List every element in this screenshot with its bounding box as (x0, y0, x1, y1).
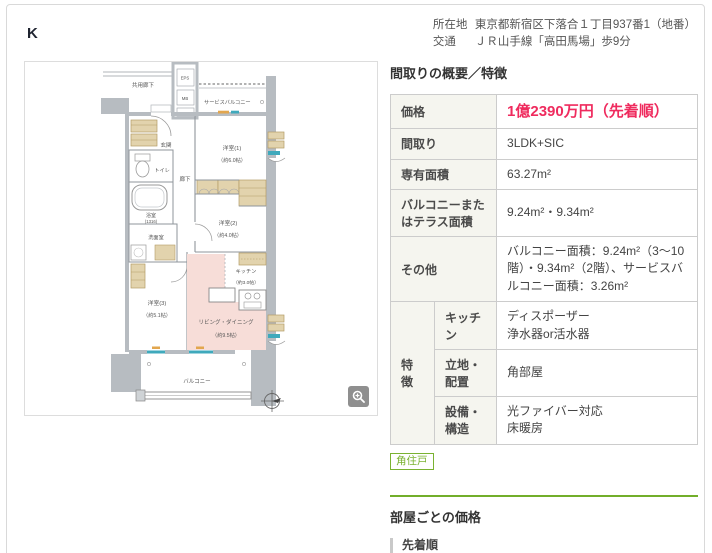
label-kitchen-size: （約3.0帖） (233, 279, 259, 286)
label-room1: 洋室(1) (223, 144, 242, 152)
label-entrance: 玄関 (160, 141, 172, 149)
features-label: 特徴 (391, 302, 435, 445)
label-mb: MB (182, 96, 189, 101)
page: K 所在地 東京都新宿区下落合１丁目937番1（地番） 交通 ＪＲ山手線「高田馬… (0, 0, 712, 553)
label-room1-size: （約6.0帖） (218, 156, 246, 164)
header: K 所在地 東京都新宿区下落合１丁目937番1（地番） 交通 ＪＲ山手線「高田馬… (24, 17, 698, 52)
room-prices-heading: 部屋ごとの価格 (390, 507, 698, 526)
label-kitchen: キッチン (236, 268, 257, 275)
property-detail-card: K 所在地 東京都新宿区下落合１丁目937番1（地番） 交通 ＪＲ山手線「高田馬… (6, 4, 705, 553)
feature-equipment-value: 光ファイバー対応 床暖房 (497, 396, 698, 444)
label-toilet: トイレ (154, 168, 170, 174)
feature-kitchen-value: ディスポーザー 浄水器or活水器 (497, 302, 698, 350)
detail-column: 間取りの概要／特徴 価格 1億2390万円（先着順） 間取り 3LDK+SIC … (390, 61, 698, 553)
area-label: 専有面積 (391, 159, 497, 189)
overview-table: 価格 1億2390万円（先着順） 間取り 3LDK+SIC 専有面積 63.27… (390, 94, 698, 445)
area-value: 63.27m² (497, 159, 698, 189)
label-room3-size: （約5.1帖） (143, 311, 171, 319)
location-label: 所在地 (433, 17, 475, 34)
section-divider (390, 495, 698, 497)
label-living-dining-size: （約9.5帖） (212, 331, 240, 339)
balcony-value: 9.24m²・9.34m² (497, 190, 698, 237)
label-balcony: バルコニー (183, 378, 210, 385)
other-label: その他 (391, 237, 497, 302)
label-service-balcony: サービスバルコニー (204, 98, 251, 106)
feature-location-value: 角部屋 (497, 349, 698, 396)
feature-row-equipment: 設備・構造 光ファイバー対応 床暖房 (391, 396, 698, 444)
price-value: 1億2390万円（先着順） (497, 94, 698, 129)
feature-equipment-label: 設備・構造 (435, 396, 497, 444)
magnifier-icon (352, 390, 365, 403)
main-content: 共用廊下 EPS MB サービスバルコニー (24, 61, 698, 553)
property-info: 所在地 東京都新宿区下落合１丁目937番1（地番） 交通 ＪＲ山手線「高田馬場」… (433, 17, 698, 52)
label-eps: EPS (181, 75, 190, 80)
corner-unit-badge: 角住戸 (390, 453, 434, 471)
spec-row-balcony: バルコニーまたはテラス面積 9.24m²・9.34m² (391, 190, 698, 237)
feature-location-label: 立地・配置 (435, 349, 497, 396)
spec-row-layout: 間取り 3LDK+SIC (391, 129, 698, 159)
label-bath: 浴室 (146, 212, 156, 219)
access-label: 交通 (433, 34, 475, 51)
label-room2-size: （約4.0帖） (214, 231, 242, 239)
price-label: 価格 (391, 94, 497, 129)
overview-heading: 間取りの概要／特徴 (390, 63, 698, 82)
floorplan-zoom-button[interactable] (348, 386, 369, 407)
spec-row-other: その他 バルコニー面積：9.24m²（3～10階）・9.34m²（2階）、サービ… (391, 237, 698, 302)
page-title: K (24, 25, 38, 42)
feature-row-location: 立地・配置 角部屋 (391, 349, 698, 396)
label-living-dining: リビング・ダイニング (198, 318, 254, 326)
spec-row-price: 価格 1億2390万円（先着順） (391, 94, 698, 129)
location-value: 東京都新宿区下落合１丁目937番1（地番） (475, 17, 696, 34)
other-value: バルコニー面積：9.24m²（3～10階）・9.34m²（2階）、サービスバルコ… (497, 237, 698, 302)
feature-kitchen-label: キッチン (435, 302, 497, 350)
label-corridor: 共用廊下 (132, 81, 155, 89)
room-prices-subheading: 先着順 (390, 538, 698, 553)
label-hallway: 廊下 (179, 175, 191, 183)
access-value: ＪＲ山手線「高田馬場」歩9分 (475, 34, 631, 51)
label-room3: 洋室(3) (148, 299, 167, 307)
spec-row-area: 専有面積 63.27m² (391, 159, 698, 189)
label-room2: 洋室(2) (219, 219, 238, 227)
layout-value: 3LDK+SIC (497, 129, 698, 159)
balcony-label: バルコニーまたはテラス面積 (391, 190, 497, 237)
layout-label: 間取り (391, 129, 497, 159)
floorplan-image: 共用廊下 EPS MB サービスバルコニー (25, 62, 377, 415)
feature-row-kitchen: 特徴 キッチン ディスポーザー 浄水器or活水器 (391, 302, 698, 350)
label-powder-room: 洗面室 (148, 233, 164, 241)
floorplan: 共用廊下 EPS MB サービスバルコニー (24, 61, 378, 416)
label-bath-size: (1316) (145, 219, 158, 224)
